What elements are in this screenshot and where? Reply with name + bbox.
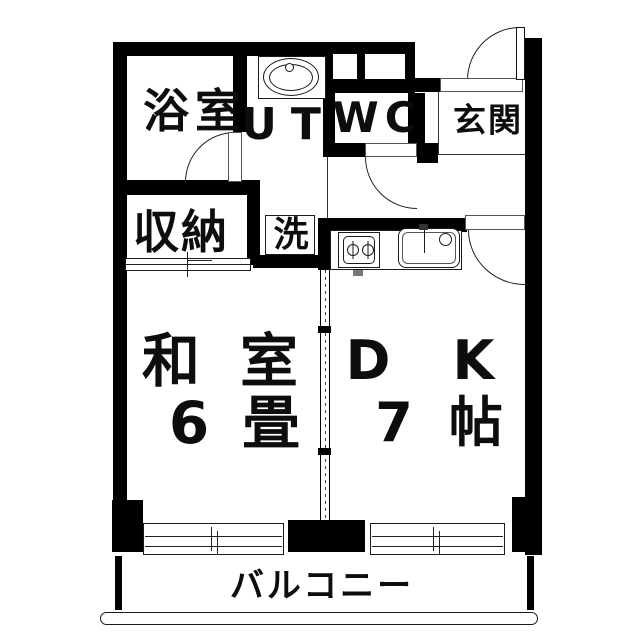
laundry-label: 洗 <box>273 219 308 254</box>
balcony-post-left <box>115 556 122 610</box>
balcony-label: バルコニー <box>230 569 414 603</box>
wc-door-swing-arc <box>365 157 417 209</box>
sink-faucet-pipe <box>424 230 425 253</box>
entrance-doorway <box>440 78 523 92</box>
utility-label: UT <box>241 103 335 147</box>
wall-storage-east <box>247 180 260 265</box>
wall-entry-band <box>415 78 440 92</box>
dining-kitchen-label: DK <box>346 334 557 388</box>
vanity-faucet-icon <box>285 63 294 72</box>
dk-window-tick-2 <box>439 531 440 555</box>
storage-sliding-door-mark <box>187 260 212 261</box>
stove-burner-icon-right <box>362 244 374 256</box>
sink-wall-tab <box>419 224 428 230</box>
balcony-railing <box>100 612 538 625</box>
stove-knob-tab <box>353 270 363 276</box>
washitsu-window-rail-2 <box>145 546 282 547</box>
genkan-step-line-vertical <box>438 92 439 155</box>
japanese-room-size: 6畳 <box>169 394 333 452</box>
wall-wc-south-right <box>417 143 438 163</box>
wall-bathroom-south <box>113 180 260 195</box>
utility-hall-divider-line <box>327 157 328 218</box>
toilet-label: WC <box>332 97 421 139</box>
washitsu-window-tick-2 <box>217 531 218 555</box>
entrance-label: 玄関 <box>453 104 523 137</box>
genkan-step-line-horizontal <box>438 154 525 155</box>
wc-window-2 <box>364 53 406 80</box>
wall-pillar-bottom-center <box>288 520 365 552</box>
dining-kitchen-size: 7帖 <box>375 396 539 450</box>
dk-doorway <box>465 215 525 230</box>
bathroom-doorway <box>228 132 242 182</box>
dk-window-rail-1 <box>372 536 503 537</box>
dk-window <box>370 523 505 555</box>
wc-window-1 <box>332 53 358 80</box>
bathroom-label: 浴室 <box>143 88 247 134</box>
storage-label: 収納 <box>133 209 229 255</box>
floor-plan: 浴室 UT WC 玄関 収納 洗 和室 6畳 DK 7帖 バルコニー <box>0 0 640 640</box>
balcony-post-right <box>527 556 534 610</box>
entrance-door-swing-arc <box>467 27 520 80</box>
dk-door-swing-arc <box>468 230 525 285</box>
wall-left <box>113 56 127 502</box>
japanese-room-label: 和室 <box>142 332 338 390</box>
washitsu-window <box>143 523 284 555</box>
wall-right <box>525 38 542 555</box>
wc-doorway <box>365 143 417 157</box>
dk-window-tick-1 <box>433 527 434 551</box>
wall-corner-bottom-left <box>112 500 143 552</box>
wall-laundry-south <box>253 255 320 268</box>
wall-corner-bottom-right <box>512 497 542 552</box>
entrance-door-leaf <box>516 27 525 80</box>
sink-faucet-icon <box>439 233 452 246</box>
washitsu-window-tick-1 <box>211 527 212 551</box>
stove-burner-icon-left <box>347 244 359 256</box>
washitsu-window-rail-1 <box>145 536 282 537</box>
dk-window-rail-2 <box>372 546 503 547</box>
